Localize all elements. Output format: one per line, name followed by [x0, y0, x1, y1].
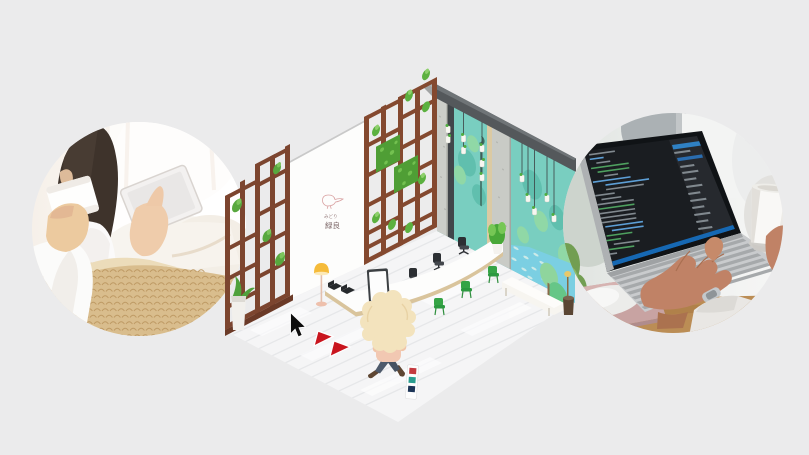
svg-text:緑良: 緑良 — [325, 220, 340, 230]
svg-text:みどり: みどり — [324, 213, 338, 220]
